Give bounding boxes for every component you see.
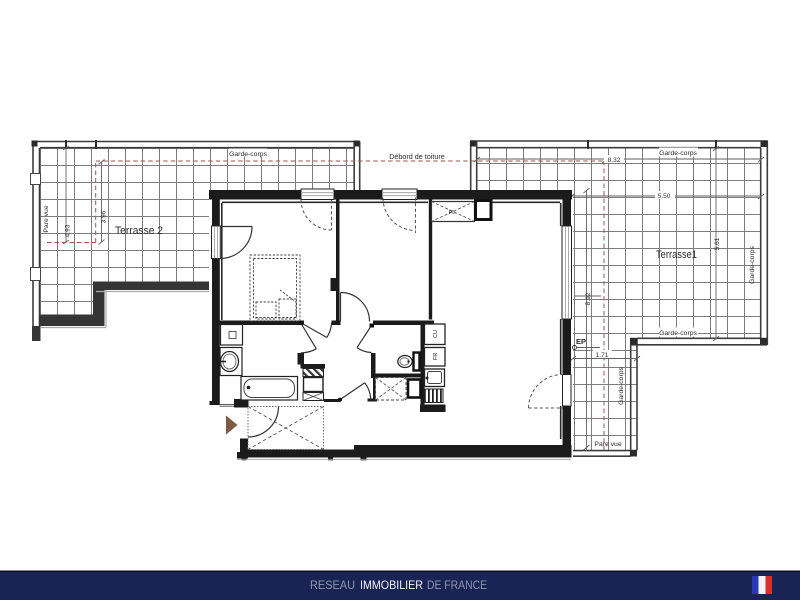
svg-text:DE FRANCE: DE FRANCE — [427, 578, 487, 592]
svg-text:Débord de toiture: Débord de toiture — [389, 152, 445, 161]
svg-text:Pare vue: Pare vue — [594, 441, 621, 448]
svg-text:PL: PL — [449, 210, 456, 216]
svg-text:RESEAU: RESEAU — [310, 578, 355, 592]
svg-text:Garde-corps: Garde-corps — [229, 151, 267, 158]
svg-text:8.32: 8.32 — [608, 157, 621, 164]
svg-text:Terrasse1: Terrasse1 — [656, 249, 697, 261]
svg-text:1.71: 1.71 — [596, 352, 609, 359]
svg-text:3.96: 3.96 — [101, 210, 108, 223]
svg-text:CU: CU — [433, 330, 439, 338]
svg-text:Garde-corps: Garde-corps — [749, 246, 756, 284]
svg-text:FR: FR — [433, 353, 439, 360]
svg-text:EP: EP — [576, 337, 586, 346]
svg-text:Pare vue: Pare vue — [43, 205, 50, 232]
svg-text:Garde-corps: Garde-corps — [659, 330, 697, 337]
svg-text:4.93: 4.93 — [65, 224, 72, 237]
svg-text:5.61: 5.61 — [714, 237, 721, 250]
svg-text:Garde-corps: Garde-corps — [659, 150, 697, 157]
svg-text:Terrasse 2: Terrasse 2 — [115, 225, 163, 237]
svg-text:5.50: 5.50 — [658, 193, 671, 200]
svg-text:IMMOBILIER: IMMOBILIER — [360, 578, 423, 592]
svg-text:8.92: 8.92 — [585, 292, 592, 305]
svg-text:Garde-corps: Garde-corps — [618, 367, 625, 405]
